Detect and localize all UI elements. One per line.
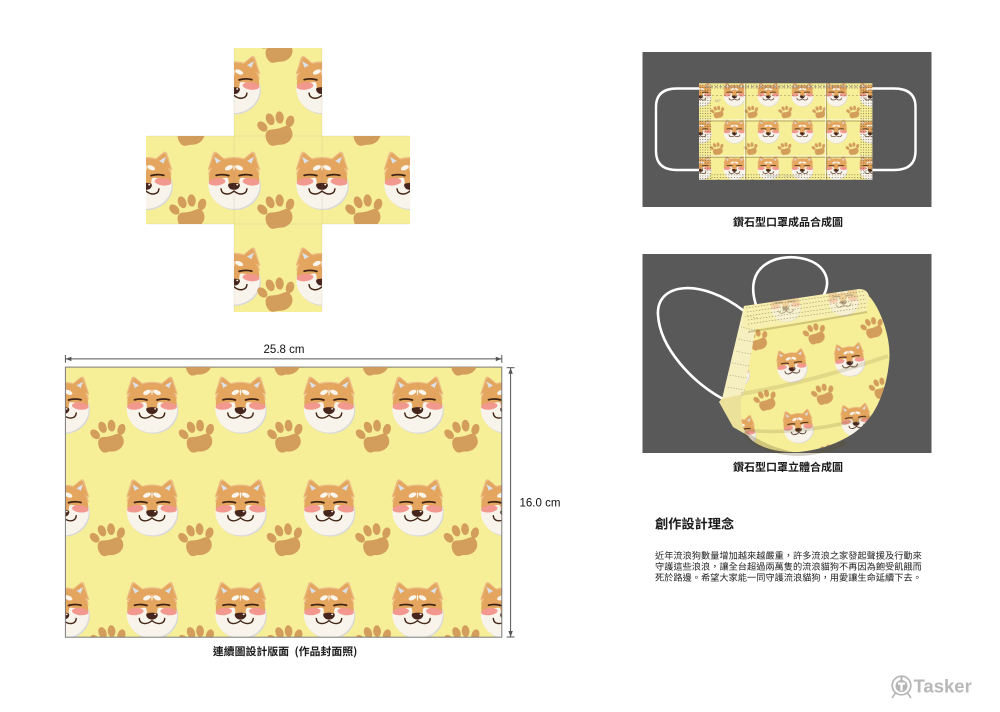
svg-text:16.0 cm: 16.0 cm xyxy=(520,498,561,510)
svg-text:25.8 cm: 25.8 cm xyxy=(264,344,305,356)
svg-text:Tasker: Tasker xyxy=(914,676,972,697)
svg-text:MIT: MIT xyxy=(715,99,722,103)
svg-text:Made in Taiwan MIT: Made in Taiwan MIT xyxy=(767,173,803,178)
